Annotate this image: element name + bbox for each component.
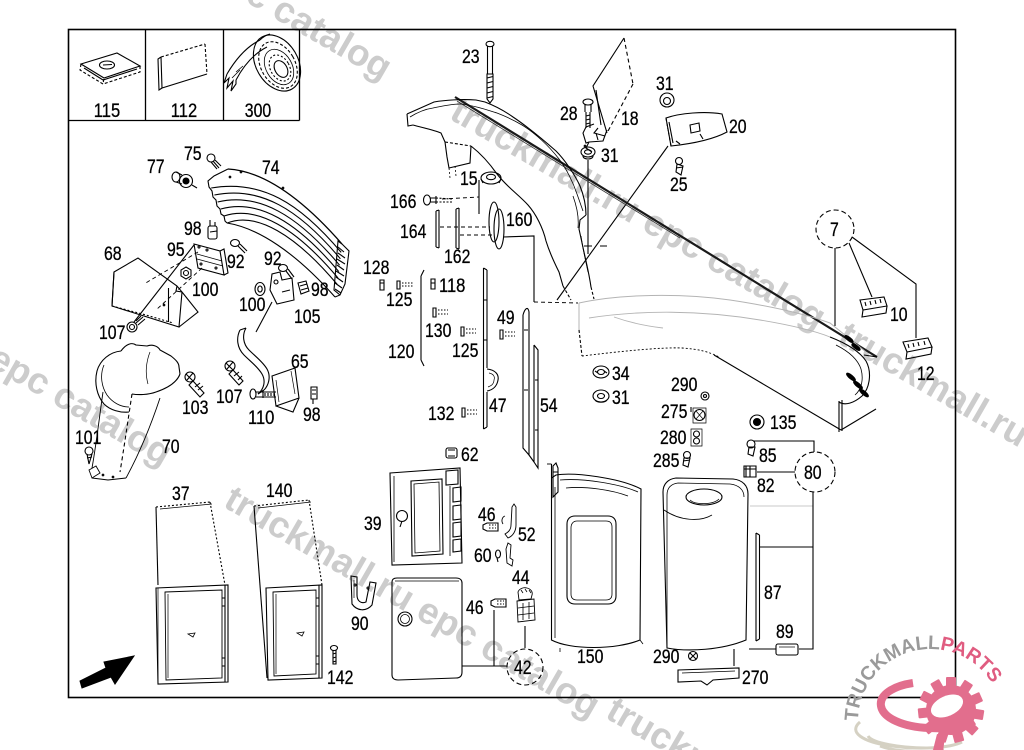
svg-text:60: 60 bbox=[474, 545, 492, 567]
svg-text:118: 118 bbox=[439, 275, 465, 297]
svg-text:275: 275 bbox=[661, 401, 688, 423]
svg-text:110: 110 bbox=[248, 407, 275, 429]
svg-text:49: 49 bbox=[497, 307, 515, 329]
svg-text:95: 95 bbox=[167, 239, 185, 261]
svg-text:107: 107 bbox=[99, 322, 125, 344]
svg-text:166: 166 bbox=[390, 191, 416, 213]
svg-text:128: 128 bbox=[363, 257, 389, 279]
svg-text:31: 31 bbox=[656, 73, 674, 95]
svg-text:87: 87 bbox=[764, 582, 782, 604]
svg-text:132: 132 bbox=[428, 403, 454, 425]
svg-text:42: 42 bbox=[514, 657, 532, 679]
svg-text:80: 80 bbox=[804, 462, 822, 484]
svg-text:47: 47 bbox=[489, 395, 507, 417]
svg-text:142: 142 bbox=[327, 667, 353, 689]
svg-text:10: 10 bbox=[890, 304, 908, 326]
svg-text:18: 18 bbox=[621, 108, 639, 130]
svg-text:103: 103 bbox=[182, 397, 208, 419]
svg-text:100: 100 bbox=[192, 279, 219, 301]
svg-text:31: 31 bbox=[612, 387, 630, 409]
svg-text:46: 46 bbox=[478, 504, 496, 526]
svg-text:52: 52 bbox=[518, 524, 536, 546]
svg-text:92: 92 bbox=[264, 248, 282, 270]
svg-text:23: 23 bbox=[462, 46, 480, 68]
svg-text:62: 62 bbox=[461, 444, 479, 466]
svg-text:120: 120 bbox=[388, 341, 415, 363]
svg-text:12: 12 bbox=[917, 363, 935, 385]
svg-text:44: 44 bbox=[512, 567, 530, 589]
svg-text:31: 31 bbox=[601, 145, 619, 167]
svg-text:34: 34 bbox=[612, 363, 630, 385]
svg-text:89: 89 bbox=[776, 621, 794, 643]
svg-text:20: 20 bbox=[729, 116, 747, 138]
svg-text:28: 28 bbox=[560, 103, 578, 125]
svg-text:164: 164 bbox=[400, 221, 427, 243]
svg-text:37: 37 bbox=[172, 483, 190, 505]
svg-text:82: 82 bbox=[757, 475, 775, 497]
svg-text:98: 98 bbox=[184, 218, 202, 240]
svg-text:90: 90 bbox=[351, 613, 369, 635]
svg-text:130: 130 bbox=[425, 320, 452, 342]
svg-text:105: 105 bbox=[294, 306, 321, 328]
svg-text:74: 74 bbox=[262, 157, 280, 179]
svg-text:77: 77 bbox=[147, 156, 165, 178]
svg-text:270: 270 bbox=[742, 667, 769, 689]
svg-text:54: 54 bbox=[540, 395, 558, 417]
svg-text:290: 290 bbox=[671, 374, 698, 396]
svg-text:290: 290 bbox=[653, 646, 680, 668]
svg-text:85: 85 bbox=[759, 445, 777, 467]
svg-text:107: 107 bbox=[216, 386, 242, 408]
svg-text:65: 65 bbox=[291, 351, 309, 373]
svg-text:160: 160 bbox=[506, 209, 533, 231]
svg-text:68: 68 bbox=[104, 243, 122, 265]
svg-text:98: 98 bbox=[303, 404, 321, 426]
svg-text:15: 15 bbox=[460, 168, 478, 190]
svg-text:150: 150 bbox=[577, 646, 604, 668]
svg-text:92: 92 bbox=[227, 251, 245, 273]
svg-text:39: 39 bbox=[364, 513, 382, 535]
svg-text:300: 300 bbox=[245, 100, 272, 122]
svg-text:46: 46 bbox=[466, 597, 484, 619]
svg-text:70: 70 bbox=[162, 436, 180, 458]
svg-text:112: 112 bbox=[171, 100, 197, 122]
svg-text:7: 7 bbox=[830, 219, 839, 241]
svg-text:162: 162 bbox=[444, 246, 470, 268]
svg-text:135: 135 bbox=[770, 412, 797, 434]
svg-text:75: 75 bbox=[184, 143, 202, 165]
svg-text:285: 285 bbox=[653, 450, 680, 472]
svg-text:115: 115 bbox=[94, 100, 121, 122]
svg-text:100: 100 bbox=[239, 294, 266, 316]
svg-text:280: 280 bbox=[660, 427, 687, 449]
svg-text:101: 101 bbox=[75, 427, 101, 449]
svg-text:25: 25 bbox=[670, 174, 688, 196]
svg-text:125: 125 bbox=[386, 289, 413, 311]
svg-text:125: 125 bbox=[452, 340, 479, 362]
svg-text:140: 140 bbox=[266, 480, 293, 502]
svg-text:98: 98 bbox=[311, 279, 329, 301]
